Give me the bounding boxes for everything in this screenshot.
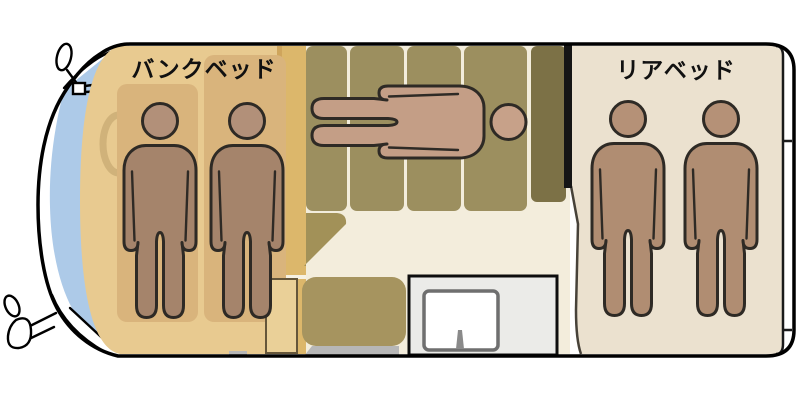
bottom-side-mirror-icon	[1, 293, 56, 348]
camper-floorplan: バンクベッド リアベッド	[0, 0, 800, 400]
sofa-cushion-end	[531, 46, 566, 202]
partition-wall	[564, 44, 572, 188]
floorplan-svg: バンクベッド リアベッド	[0, 0, 800, 400]
bunk-bed-label: バンクベッド	[131, 57, 276, 83]
rear-bed-label: リアベッド	[616, 58, 736, 84]
dinette-table	[302, 277, 406, 346]
